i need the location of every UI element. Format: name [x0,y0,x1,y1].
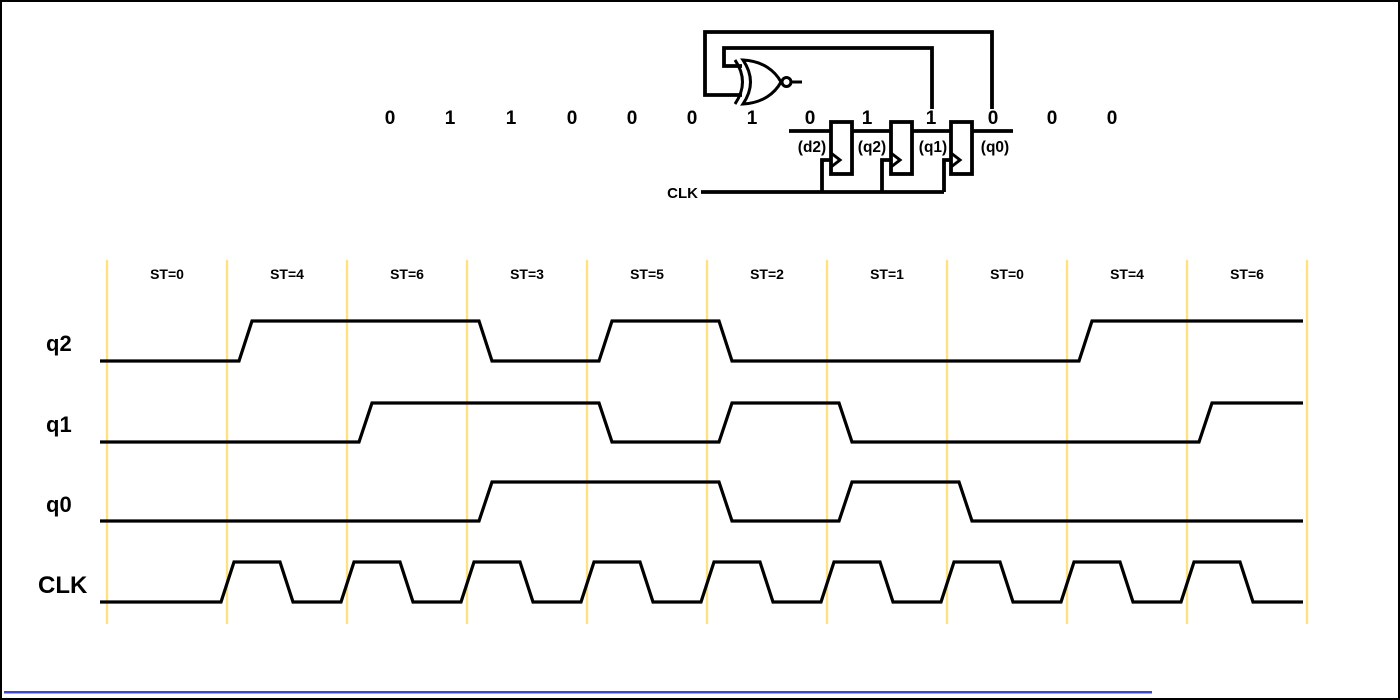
bit-stream-row: 0110001011000 [385,108,1118,129]
circuit-clk-label: CLK [667,185,698,202]
signal-label-clk: CLK [38,572,88,599]
bit-3: 0 [567,108,578,129]
bit-0: 0 [385,108,396,129]
state-label-9: ST=6 [1230,266,1264,282]
waveform-q0 [100,482,1303,521]
bit-7: 0 [805,108,816,129]
bit-8: 1 [862,108,873,129]
timing-diagram: ST=0ST=4ST=6ST=3ST=5ST=2ST=1ST=0ST=4ST=6… [38,260,1307,624]
waveforms [100,321,1303,602]
bit-11: 0 [1047,108,1058,129]
bit-10: 0 [988,108,999,129]
bottom-accent-line [4,691,1152,694]
bit-1: 1 [445,108,456,129]
state-label-8: ST=4 [1110,266,1144,282]
state-label-1: ST=4 [270,266,304,282]
xnor-inverter-bubble [782,78,791,87]
xnor-gate-icon [735,60,802,104]
state-label-3: ST=3 [510,266,544,282]
bit-2: 1 [506,108,517,129]
reg-label-q2: (q2) [858,139,886,156]
lfsr-shift-register-diagram: CLK 0110001011000 (d2)(q2)(q1)(q0) ST=0S… [0,0,1400,700]
state-label-7: ST=0 [990,266,1024,282]
state-label-0: ST=0 [150,266,184,282]
state-label-5: ST=2 [750,266,784,282]
circuit-schematic: CLK 0110001011000 (d2)(q2)(q1)(q0) [385,32,1118,202]
reg-label-q1: (q1) [919,139,947,156]
bit-12: 0 [1107,108,1118,129]
xnor-body [743,60,781,104]
waveform-q1 [100,403,1303,442]
waveform-q2 [100,321,1303,361]
bit-9: 1 [926,108,937,129]
bit-4: 0 [627,108,638,129]
state-label-4: ST=5 [630,266,664,282]
bit-6: 1 [747,108,758,129]
signal-label-q0: q0 [46,492,72,517]
reg-label-q0: (q0) [981,139,1009,156]
state-label-6: ST=1 [870,266,904,282]
signal-label-q1: q1 [46,412,72,437]
signal-labels: q2q1q0CLK [38,331,88,599]
diagram-canvas: CLK 0110001011000 (d2)(q2)(q1)(q0) ST=0S… [2,2,1400,700]
bit-5: 0 [687,108,698,129]
feedback-wire-from-q1 [724,48,932,109]
state-label-2: ST=6 [390,266,424,282]
signal-label-q2: q2 [46,331,72,356]
waveform-clk [100,562,1303,602]
reg-label-d2: (d2) [798,139,826,156]
